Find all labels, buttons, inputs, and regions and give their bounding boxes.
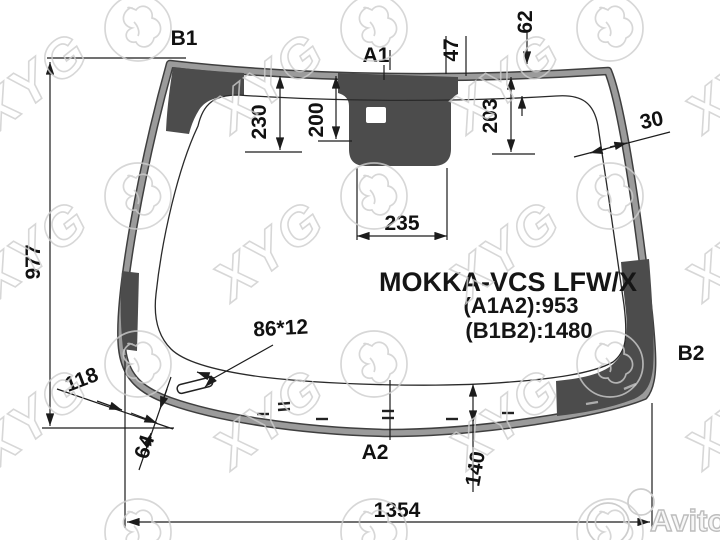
windshield-drawing: XYG: [0, 0, 720, 540]
windshield-diagram-page: XYG: [0, 0, 720, 540]
avito-watermark-text: Avito: [650, 503, 720, 538]
xyg-watermark-layer: [0, 0, 720, 540]
